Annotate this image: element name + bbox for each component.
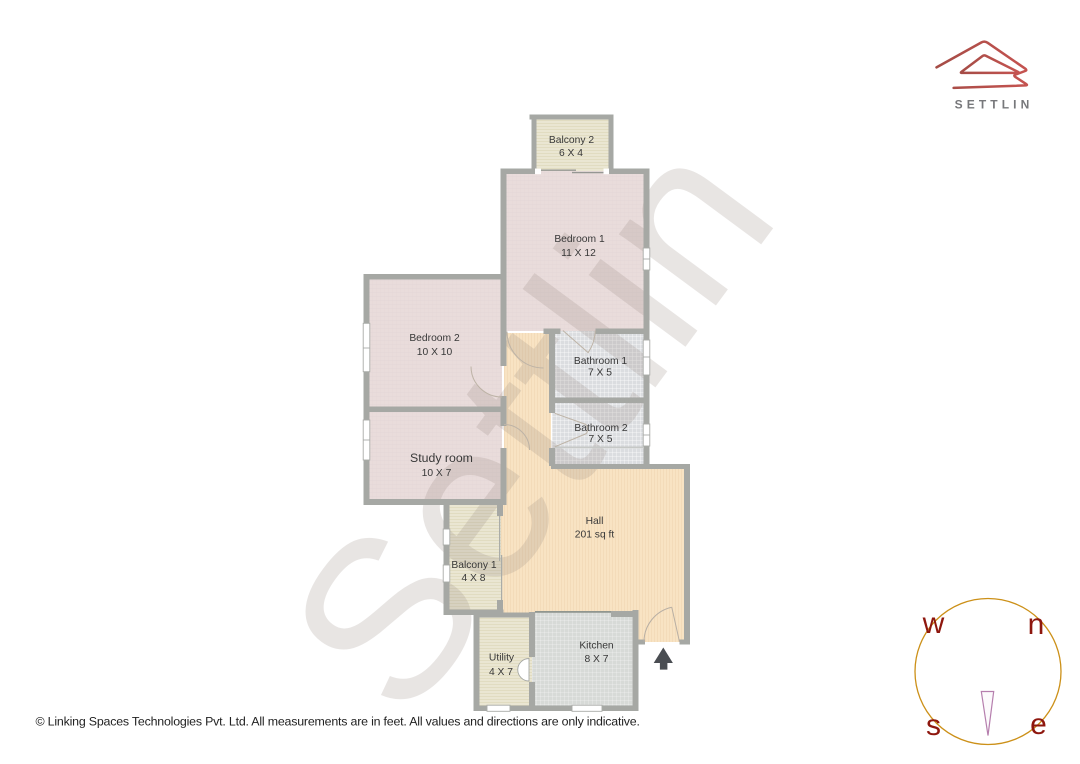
svg-text:w: w xyxy=(922,607,945,640)
svg-text:n: n xyxy=(1028,608,1045,641)
svg-text:4 X 8: 4 X 8 xyxy=(461,573,485,584)
svg-text:Balcony 1: Balcony 1 xyxy=(451,560,496,571)
svg-text:10 X 10: 10 X 10 xyxy=(417,347,453,358)
svg-text:7 X 5: 7 X 5 xyxy=(588,368,612,379)
svg-text:Hall: Hall xyxy=(586,516,604,527)
svg-text:SETTLIN: SETTLIN xyxy=(955,98,1034,112)
svg-text:e: e xyxy=(1030,708,1047,741)
svg-text:8 X 7: 8 X 7 xyxy=(584,654,608,665)
svg-text:201 sq ft: 201 sq ft xyxy=(575,530,615,541)
svg-text:Utility: Utility xyxy=(489,653,515,664)
svg-text:7 X 5: 7 X 5 xyxy=(588,434,612,445)
svg-text:Balcony 2: Balcony 2 xyxy=(549,135,594,146)
svg-text:s: s xyxy=(926,709,941,742)
svg-text:10 X 7: 10 X 7 xyxy=(422,468,452,479)
svg-text:Bedroom 2: Bedroom 2 xyxy=(409,333,460,344)
svg-text:Bathroom 1: Bathroom 1 xyxy=(574,356,628,367)
svg-text:4 X 7: 4 X 7 xyxy=(489,667,513,678)
svg-text:6 X 4: 6 X 4 xyxy=(559,148,583,159)
svg-text:Study room: Study room xyxy=(410,451,473,465)
svg-text:11 X 12: 11 X 12 xyxy=(561,248,596,259)
svg-text:Bathroom 2: Bathroom 2 xyxy=(574,423,628,434)
svg-text:© Linking Spaces Technologies: © Linking Spaces Technologies Pvt. Ltd. … xyxy=(36,714,640,728)
svg-text:Kitchen: Kitchen xyxy=(579,641,614,652)
svg-text:Bedroom 1: Bedroom 1 xyxy=(554,234,605,245)
